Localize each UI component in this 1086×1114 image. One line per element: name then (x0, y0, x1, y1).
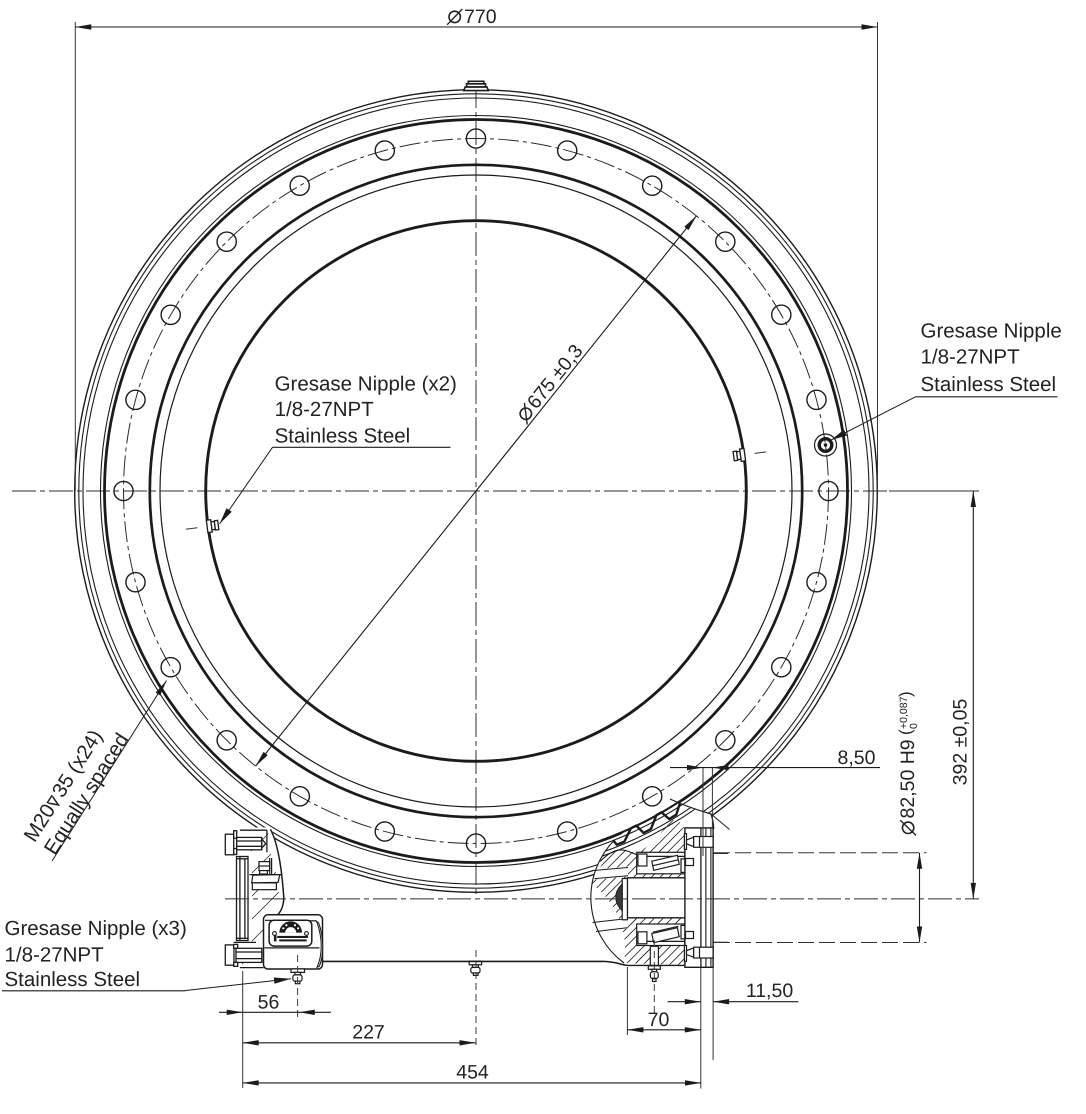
svg-text:56: 56 (258, 992, 280, 1014)
svg-text:8,50: 8,50 (838, 747, 876, 769)
svg-text:Gresase Nipple (x3): Gresase Nipple (x3) (5, 917, 187, 940)
svg-text:Gresase Nipple: Gresase Nipple (921, 320, 1062, 343)
svg-text:11,50: 11,50 (746, 980, 794, 1002)
svg-text:1/8-27NPT: 1/8-27NPT (5, 944, 105, 967)
svg-text:0: 0 (908, 723, 920, 729)
svg-text:675 ±0,3: 675 ±0,3 (523, 340, 588, 413)
svg-text:Stainless Steel: Stainless Steel (5, 968, 141, 991)
svg-text:Stainless Steel: Stainless Steel (921, 373, 1057, 396)
svg-text:227: 227 (352, 1022, 385, 1044)
svg-text:770: 770 (464, 6, 497, 28)
svg-text:392 ±0,05: 392 ±0,05 (950, 699, 972, 786)
svg-text:1/8-27NPT: 1/8-27NPT (275, 398, 375, 421)
svg-text:70: 70 (648, 1009, 670, 1031)
svg-text:454: 454 (456, 1062, 489, 1084)
svg-text:): ) (896, 691, 915, 697)
svg-text:Gresase Nipple (x2): Gresase Nipple (x2) (275, 372, 457, 395)
svg-text:Stainless Steel: Stainless Steel (275, 424, 411, 447)
svg-text:82,50 H9: 82,50 H9 (897, 739, 919, 818)
svg-text:1/8-27NPT: 1/8-27NPT (921, 346, 1021, 369)
